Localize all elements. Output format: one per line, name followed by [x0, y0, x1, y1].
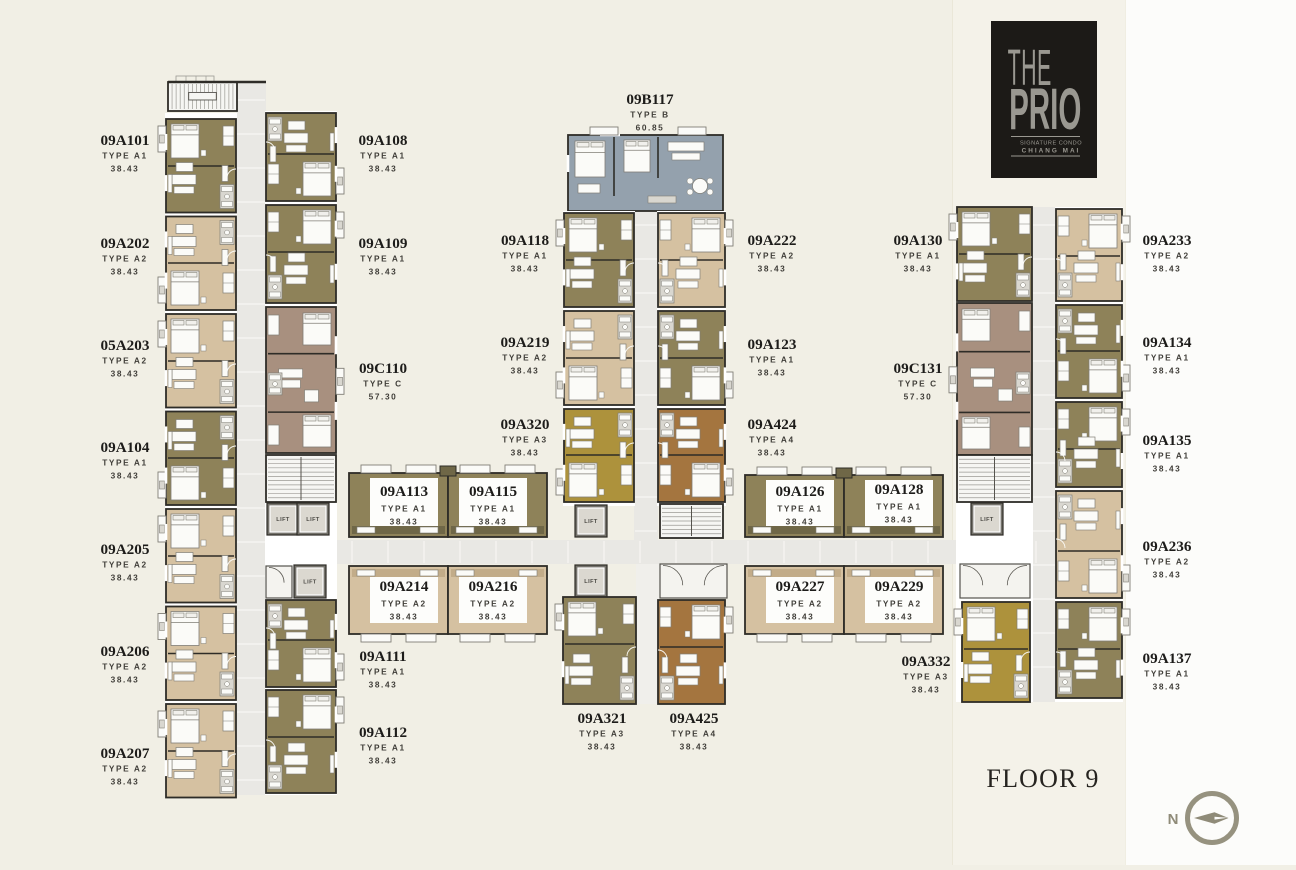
svg-text:38.43: 38.43 [369, 164, 398, 174]
svg-text:38.43: 38.43 [369, 680, 398, 690]
svg-text:TYPE B: TYPE B [630, 110, 670, 120]
svg-text:TYPE A4: TYPE A4 [671, 729, 716, 739]
svg-text:09A424: 09A424 [748, 416, 797, 433]
svg-text:38.43: 38.43 [588, 742, 617, 752]
svg-text:09A205: 09A205 [101, 541, 150, 558]
svg-text:38.43: 38.43 [885, 612, 914, 622]
svg-text:TYPE A2: TYPE A2 [381, 599, 426, 609]
svg-text:38.43: 38.43 [885, 515, 914, 525]
svg-text:09A229: 09A229 [875, 578, 924, 595]
svg-text:09A111: 09A111 [359, 648, 406, 665]
svg-text:TYPE A2: TYPE A2 [749, 251, 794, 261]
svg-text:LIFT: LIFT [306, 517, 320, 523]
svg-text:38.43: 38.43 [479, 612, 508, 622]
svg-text:38.43: 38.43 [111, 675, 140, 685]
svg-text:LIFT: LIFT [276, 517, 290, 523]
svg-text:09A109: 09A109 [359, 235, 408, 252]
svg-text:09A130: 09A130 [894, 232, 943, 249]
svg-text:TYPE A1: TYPE A1 [777, 504, 822, 514]
svg-text:09A104: 09A104 [101, 439, 150, 456]
svg-text:09A425: 09A425 [670, 710, 719, 727]
svg-text:60.85: 60.85 [636, 123, 665, 133]
svg-text:TYPE A1: TYPE A1 [360, 254, 405, 264]
svg-text:57.30: 57.30 [904, 392, 933, 402]
svg-text:09A321: 09A321 [578, 710, 627, 727]
svg-text:38.43: 38.43 [111, 164, 140, 174]
svg-text:TYPE A3: TYPE A3 [579, 729, 624, 739]
svg-text:TYPE A2: TYPE A2 [102, 662, 147, 672]
svg-text:38.43: 38.43 [111, 777, 140, 787]
svg-text:38.43: 38.43 [111, 369, 140, 379]
svg-text:38.43: 38.43 [680, 742, 709, 752]
svg-text:09A118: 09A118 [501, 232, 550, 249]
svg-text:TYPE A1: TYPE A1 [749, 355, 794, 365]
svg-text:N: N [1168, 811, 1179, 828]
svg-text:TYPE A1: TYPE A1 [360, 743, 405, 753]
svg-text:TYPE A3: TYPE A3 [502, 435, 547, 445]
svg-text:38.43: 38.43 [511, 448, 540, 458]
svg-text:TYPE A1: TYPE A1 [470, 504, 515, 514]
svg-text:38.43: 38.43 [111, 573, 140, 583]
svg-text:09C110: 09C110 [359, 360, 408, 377]
svg-text:38.43: 38.43 [111, 267, 140, 277]
svg-text:TYPE A2: TYPE A2 [777, 599, 822, 609]
svg-text:TYPE A1: TYPE A1 [1144, 669, 1189, 679]
svg-text:38.43: 38.43 [912, 685, 941, 695]
svg-text:LIFT: LIFT [980, 517, 994, 523]
svg-text:09A112: 09A112 [359, 724, 407, 741]
svg-text:TYPE C: TYPE C [898, 379, 938, 389]
svg-text:FLOOR 9: FLOOR 9 [986, 764, 1099, 793]
svg-text:09A207: 09A207 [101, 745, 150, 762]
svg-text:09A233: 09A233 [1143, 232, 1192, 249]
svg-text:09A126: 09A126 [776, 483, 825, 500]
svg-text:TYPE A2: TYPE A2 [502, 353, 547, 363]
svg-text:LIFT: LIFT [584, 519, 598, 525]
svg-text:38.43: 38.43 [511, 264, 540, 274]
svg-text:38.43: 38.43 [758, 448, 787, 458]
svg-text:LIFT: LIFT [584, 579, 598, 585]
svg-text:38.43: 38.43 [369, 756, 398, 766]
svg-text:09A320: 09A320 [501, 416, 550, 433]
svg-text:38.43: 38.43 [1153, 464, 1182, 474]
svg-text:TYPE A1: TYPE A1 [102, 458, 147, 468]
svg-text:09B117: 09B117 [626, 91, 674, 108]
svg-text:09A115: 09A115 [469, 483, 518, 500]
svg-text:TYPE A1: TYPE A1 [895, 251, 940, 261]
svg-text:TYPE A1: TYPE A1 [381, 504, 426, 514]
svg-text:TYPE A1: TYPE A1 [360, 151, 405, 161]
svg-text:TYPE A1: TYPE A1 [502, 251, 547, 261]
svg-text:TYPE A2: TYPE A2 [102, 356, 147, 366]
svg-text:38.43: 38.43 [758, 368, 787, 378]
svg-text:38.43: 38.43 [479, 517, 508, 527]
svg-text:09A332: 09A332 [902, 653, 951, 670]
svg-text:TYPE A2: TYPE A2 [876, 599, 921, 609]
svg-text:TYPE A1: TYPE A1 [1144, 451, 1189, 461]
svg-text:38.43: 38.43 [369, 267, 398, 277]
svg-text:09A108: 09A108 [359, 132, 408, 149]
svg-text:TYPE C: TYPE C [363, 379, 403, 389]
svg-text:TYPE A1: TYPE A1 [1144, 353, 1189, 363]
svg-text:38.43: 38.43 [390, 517, 419, 527]
svg-text:38.43: 38.43 [758, 264, 787, 274]
svg-text:38.43: 38.43 [1153, 682, 1182, 692]
svg-text:TYPE A1: TYPE A1 [360, 667, 405, 677]
svg-text:TYPE A3: TYPE A3 [903, 672, 948, 682]
svg-text:09A222: 09A222 [748, 232, 797, 249]
svg-text:09A128: 09A128 [875, 481, 924, 498]
svg-text:09A236: 09A236 [1143, 538, 1192, 555]
svg-text:09A101: 09A101 [101, 132, 150, 149]
svg-text:09A123: 09A123 [748, 336, 797, 353]
svg-text:LIFT: LIFT [303, 580, 317, 586]
svg-text:SIGNATURE CONDO: SIGNATURE CONDO [1020, 141, 1082, 147]
svg-text:PRIO: PRIO [1009, 76, 1081, 142]
svg-text:09A216: 09A216 [469, 578, 518, 595]
svg-text:09A214: 09A214 [380, 578, 429, 595]
svg-text:TYPE A2: TYPE A2 [102, 560, 147, 570]
svg-text:38.43: 38.43 [1153, 366, 1182, 376]
svg-text:09A206: 09A206 [101, 643, 150, 660]
svg-text:TYPE A1: TYPE A1 [876, 502, 921, 512]
svg-text:09C131: 09C131 [894, 360, 943, 377]
svg-text:CHIANG MAI: CHIANG MAI [1022, 148, 1081, 155]
svg-text:38.43: 38.43 [786, 612, 815, 622]
svg-text:38.43: 38.43 [111, 471, 140, 481]
svg-text:TYPE A2: TYPE A2 [102, 254, 147, 264]
svg-text:38.43: 38.43 [786, 517, 815, 527]
svg-text:38.43: 38.43 [904, 264, 933, 274]
svg-text:09A227: 09A227 [776, 578, 825, 595]
svg-text:57.30: 57.30 [369, 392, 398, 402]
svg-text:09A137: 09A137 [1143, 650, 1192, 667]
svg-text:TYPE A2: TYPE A2 [470, 599, 515, 609]
svg-text:38.43: 38.43 [1153, 264, 1182, 274]
svg-text:38.43: 38.43 [1153, 570, 1182, 580]
svg-text:TYPE A2: TYPE A2 [1144, 557, 1189, 567]
svg-text:38.43: 38.43 [390, 612, 419, 622]
svg-text:09A134: 09A134 [1143, 334, 1192, 351]
svg-text:09A202: 09A202 [101, 235, 150, 252]
svg-text:TYPE A2: TYPE A2 [1144, 251, 1189, 261]
svg-text:09A113: 09A113 [380, 483, 429, 500]
svg-text:05A203: 05A203 [101, 337, 150, 354]
svg-text:38.43: 38.43 [511, 366, 540, 376]
svg-text:09A135: 09A135 [1143, 432, 1192, 449]
svg-text:TYPE A4: TYPE A4 [749, 435, 794, 445]
svg-text:TYPE A2: TYPE A2 [102, 764, 147, 774]
svg-text:TYPE A1: TYPE A1 [102, 151, 147, 161]
svg-text:09A219: 09A219 [501, 334, 550, 351]
